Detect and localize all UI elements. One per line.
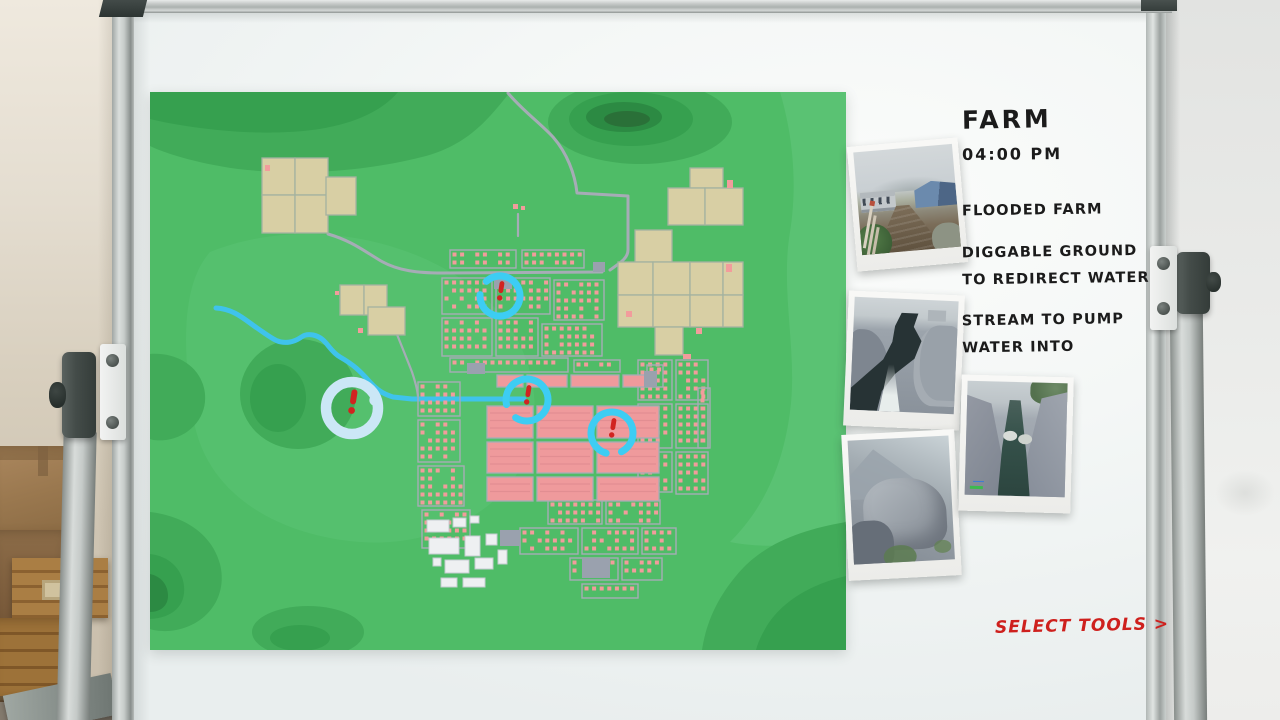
photo-shed — [860, 190, 896, 213]
farm-area-map — [150, 92, 846, 650]
flooded-farm-photo — [847, 137, 968, 271]
frame-top-rail — [104, 0, 1172, 13]
photo-rocks — [912, 324, 958, 407]
planning-map — [150, 92, 846, 650]
stand-leg — [1170, 308, 1207, 720]
photo-verge — [931, 222, 961, 256]
photo-hut — [928, 310, 946, 322]
mission-notes: FARM 04:00 PM FLOODED FARM DIGGABLE GROU… — [962, 104, 1164, 376]
photo-moss — [934, 540, 952, 553]
bolt — [106, 416, 119, 429]
note-line: FLOODED FARM — [962, 196, 1164, 226]
stand-leg — [56, 432, 96, 720]
floor-shadow-spot — [1215, 470, 1275, 516]
stand-bracket — [100, 344, 126, 440]
stand-clamp — [1176, 252, 1210, 314]
stand-clamp — [62, 352, 96, 438]
mission-time: 04:00 PM — [962, 143, 1164, 164]
rocky-hill-photo — [841, 429, 961, 581]
frame-corner-cap — [1141, 0, 1177, 11]
terrain-layer — [150, 92, 846, 650]
note-line: DIGGABLE GROUND TO REDIRECT WATER — [962, 237, 1165, 293]
frame-corner-cap — [99, 0, 147, 17]
canyon-stream-photo — [958, 375, 1074, 514]
bolt — [106, 354, 119, 367]
whiteboard-scene: FARM 04:00 PM FLOODED FARM DIGGABLE GROU… — [0, 0, 1280, 720]
photo-moss — [883, 544, 917, 565]
photo-canyon-water — [998, 400, 1032, 497]
photo-hud-marks — [970, 486, 983, 489]
stream-photo — [843, 291, 965, 431]
mission-title: FARM — [962, 102, 1164, 135]
note-line: STREAM TO PUMP WATER INTO — [962, 306, 1165, 362]
select-tools-button[interactable]: SELECT TOOLS > — [995, 614, 1169, 638]
